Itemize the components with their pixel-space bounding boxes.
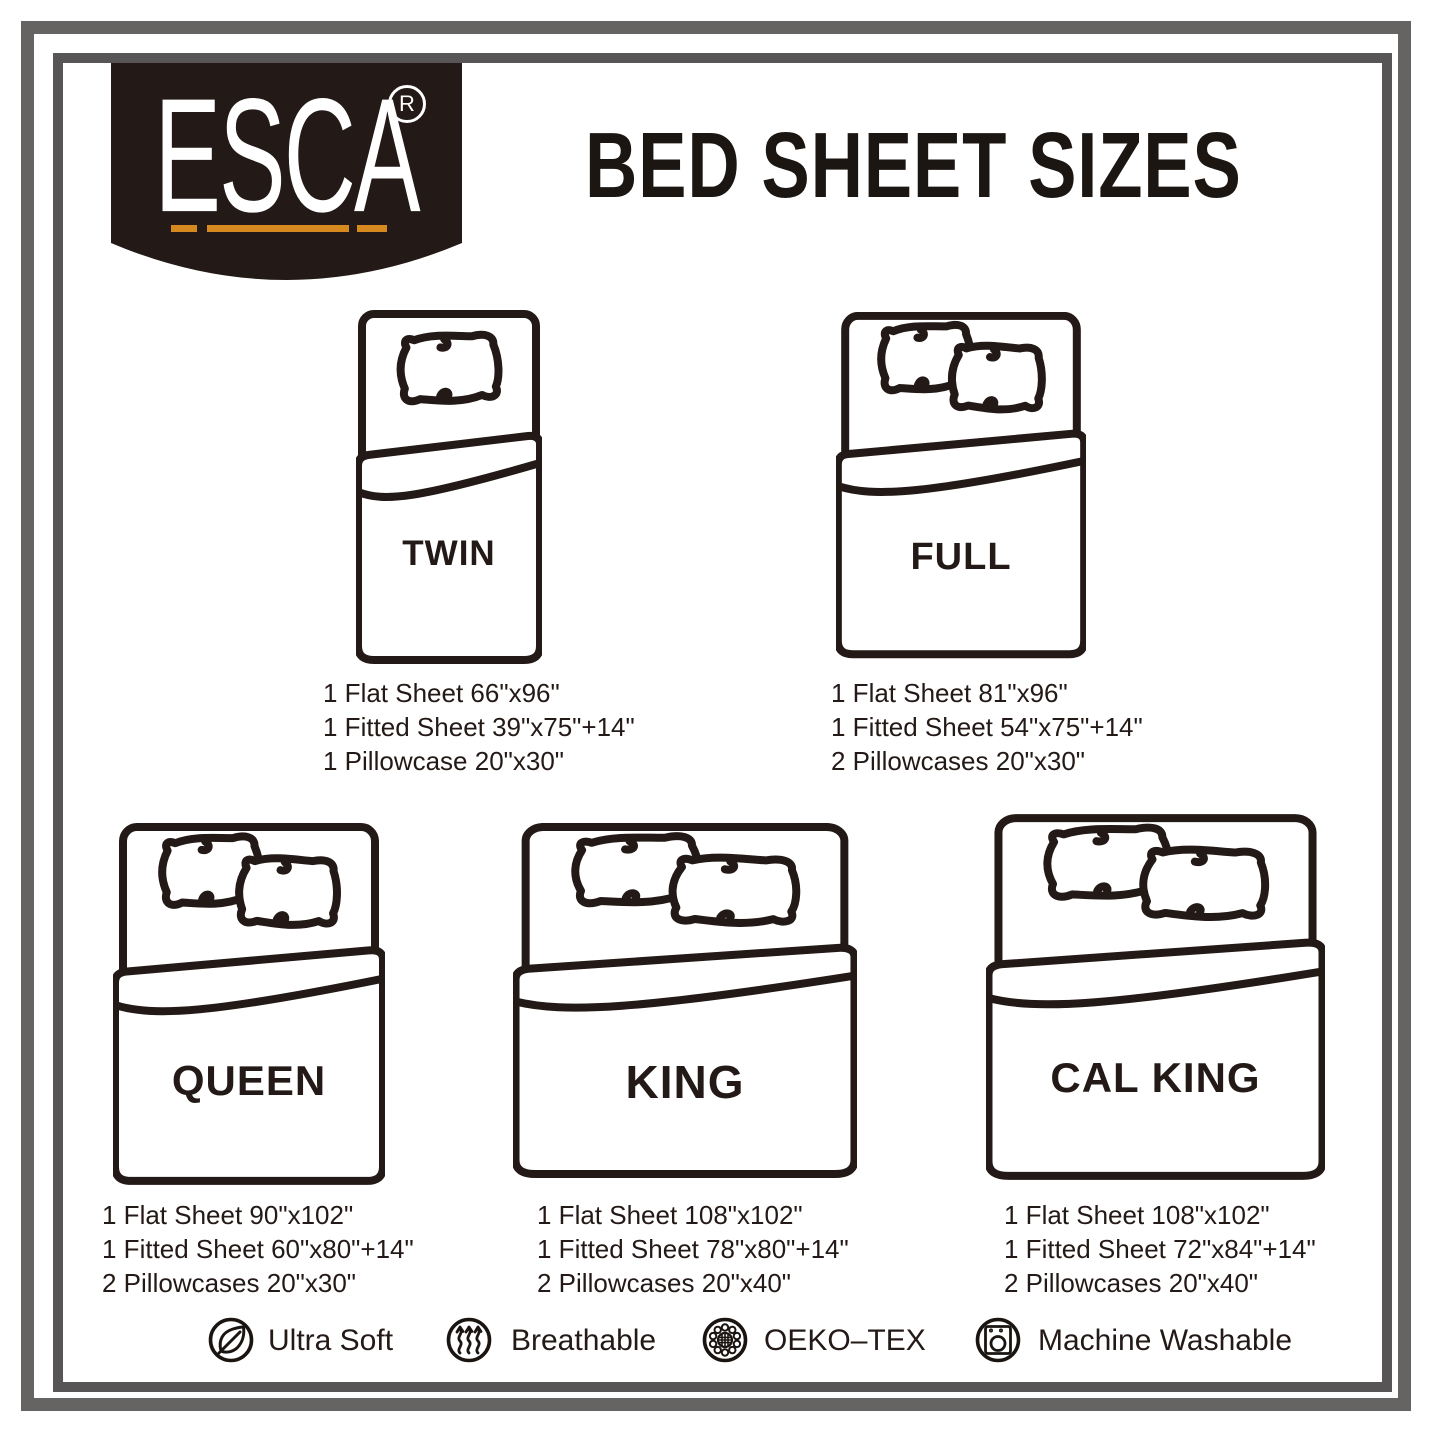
feature-label: Ultra Soft <box>268 1324 393 1358</box>
feature-label: OEKO–TEX <box>764 1324 926 1358</box>
full-bed-drawing <box>836 312 1086 660</box>
bed-size-label: TWIN <box>356 534 542 574</box>
page-title: BED SHEET SIZES <box>585 112 1242 219</box>
feature-label: Machine Washable <box>1038 1324 1292 1358</box>
bed-size-label: FULL <box>836 536 1086 579</box>
spec-line: 1 Flat Sheet 66"x96" <box>323 676 635 710</box>
specs-cal-king: 1 Flat Sheet 108"x102" 1 Fitted Sheet 72… <box>1004 1198 1316 1300</box>
leaf-icon <box>208 1317 254 1363</box>
spec-line: 2 Pillowcases 20"x30" <box>831 744 1143 778</box>
bed-diagram-queen: QUEEN <box>113 823 385 1187</box>
breathable-waves-icon <box>446 1317 492 1363</box>
queen-bed-drawing <box>113 823 385 1187</box>
spec-line: 2 Pillowcases 20"x40" <box>537 1266 849 1300</box>
specs-full: 1 Flat Sheet 81"x96" 1 Fitted Sheet 54"x… <box>831 676 1143 778</box>
specs-king: 1 Flat Sheet 108"x102" 1 Fitted Sheet 78… <box>537 1198 849 1300</box>
spec-line: 2 Pillowcases 20"x30" <box>102 1266 414 1300</box>
bed-diagram-cal-king: CAL KING <box>986 814 1325 1182</box>
bed-sheet-sizes-infographic: ESCA R BED SHEET SIZES TWIN 1 Flat Sheet… <box>0 0 1445 1445</box>
spec-line: 1 Flat Sheet 108"x102" <box>537 1198 849 1232</box>
feature-label: Breathable <box>511 1324 656 1358</box>
spec-line: 2 Pillowcases 20"x40" <box>1004 1266 1316 1300</box>
spec-line: 1 Fitted Sheet 78"x80"+14" <box>537 1232 849 1266</box>
king-bed-drawing <box>513 823 857 1180</box>
specs-queen: 1 Flat Sheet 90"x102" 1 Fitted Sheet 60"… <box>102 1198 414 1300</box>
spec-line: 1 Fitted Sheet 60"x80"+14" <box>102 1232 414 1266</box>
bed-diagram-twin: TWIN <box>356 310 542 666</box>
logo-accent-line <box>171 225 387 232</box>
spec-line: 1 Flat Sheet 81"x96" <box>831 676 1143 710</box>
bed-diagram-king: KING <box>513 823 857 1180</box>
specs-twin: 1 Flat Sheet 66"x96" 1 Fitted Sheet 39"x… <box>323 676 635 778</box>
spec-line: 1 Flat Sheet 108"x102" <box>1004 1198 1316 1232</box>
spec-line: 1 Flat Sheet 90"x102" <box>102 1198 414 1232</box>
spec-line: 1 Pillowcase 20"x30" <box>323 744 635 778</box>
oeko-tex-flower-icon <box>702 1317 748 1363</box>
washing-machine-icon <box>975 1317 1021 1363</box>
bed-diagram-full: FULL <box>836 312 1086 660</box>
brand-logo: ESCA R <box>111 63 462 281</box>
bed-size-label: KING <box>513 1055 857 1109</box>
spec-line: 1 Fitted Sheet 72"x84"+14" <box>1004 1232 1316 1266</box>
spec-line: 1 Fitted Sheet 39"x75"+14" <box>323 710 635 744</box>
spec-line: 1 Fitted Sheet 54"x75"+14" <box>831 710 1143 744</box>
cal-king-bed-drawing <box>986 814 1325 1182</box>
twin-bed-drawing <box>356 310 542 666</box>
bed-size-label: CAL KING <box>986 1054 1325 1102</box>
bed-size-label: QUEEN <box>113 1057 385 1105</box>
registered-trademark-icon: R <box>388 85 426 123</box>
